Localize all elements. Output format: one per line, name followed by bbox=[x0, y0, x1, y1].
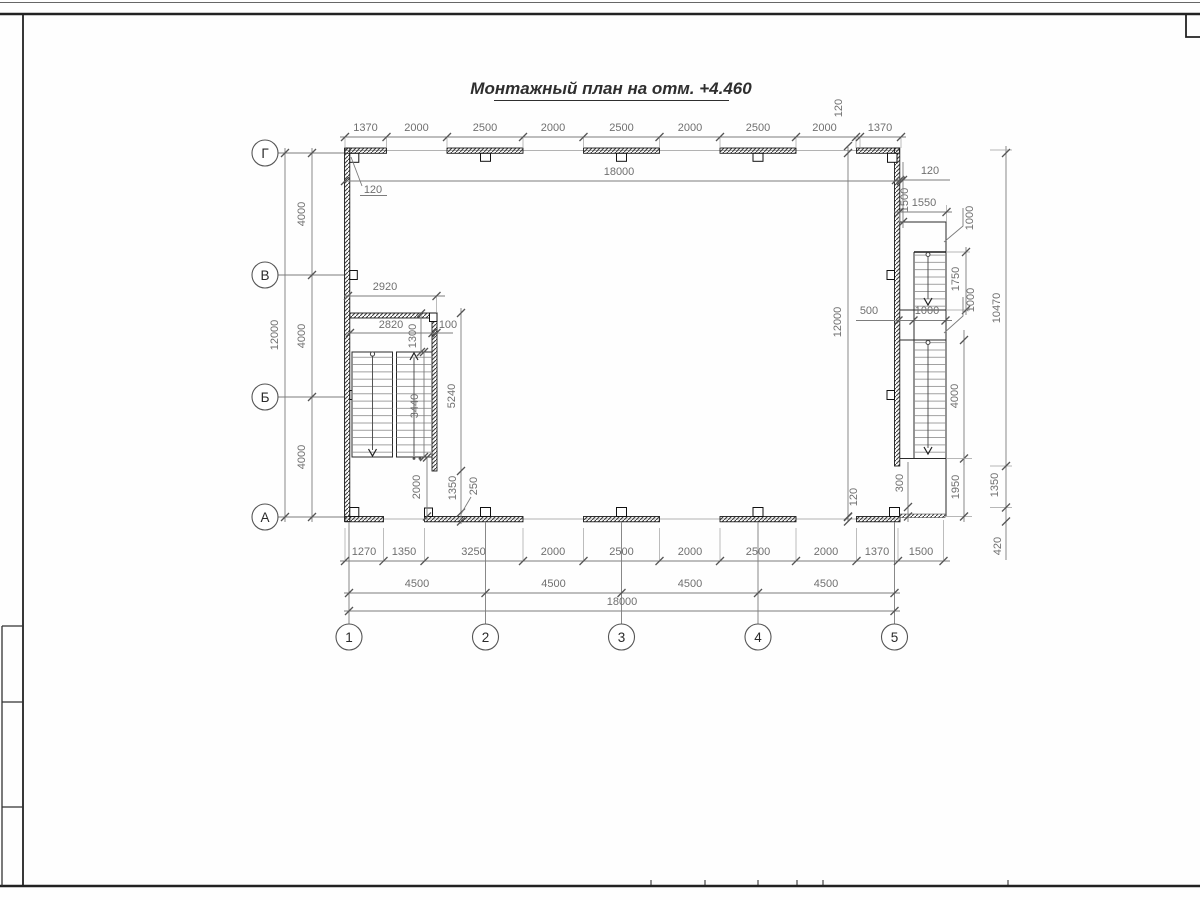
external-stair bbox=[900, 222, 946, 518]
dim-1500: 1500 bbox=[899, 188, 911, 212]
dim-bottom2: 4500 bbox=[678, 578, 702, 590]
dim-corner-120: 120 bbox=[364, 184, 382, 196]
dim-1000: 1000 bbox=[915, 305, 939, 317]
axis-label-4: 4 bbox=[754, 630, 762, 645]
top-wall-segment bbox=[720, 148, 796, 153]
dim-bottom2: 4500 bbox=[405, 578, 429, 590]
dim-bottom1: 1500 bbox=[909, 546, 933, 558]
dim-bottom1: 2000 bbox=[678, 546, 702, 558]
dim-12000: 12000 bbox=[832, 307, 844, 338]
dim-1000-leader-top: 1000 bbox=[964, 206, 976, 230]
dim-bottom1: 3250 bbox=[461, 546, 485, 558]
dim-top: 2000 bbox=[678, 122, 702, 134]
dim-10470: 10470 bbox=[991, 293, 1003, 324]
dim-420: 420 bbox=[992, 537, 1004, 555]
dim-bottom2: 4500 bbox=[541, 578, 565, 590]
dim-left-4000: 4000 bbox=[296, 202, 308, 226]
dim-top: 1370 bbox=[868, 122, 892, 134]
top-wall-segment bbox=[584, 148, 660, 153]
axis-label-v: В bbox=[260, 268, 269, 283]
axis-label-2: 2 bbox=[482, 630, 490, 645]
title-text: Монтажный план на отм. +4.460 bbox=[470, 79, 752, 98]
axis-label-a: А bbox=[260, 510, 269, 525]
dim-5240: 5240 bbox=[446, 384, 458, 408]
dim-top: 2000 bbox=[812, 122, 836, 134]
dim-top-120: 120 bbox=[833, 99, 845, 117]
dimensions-bottom: 1270 1350 3250 2000 2500 2000 2500 2000 … bbox=[340, 520, 950, 615]
dim-bottom1: 2000 bbox=[814, 546, 838, 558]
building-walls bbox=[345, 148, 901, 522]
bottom-wall-segment bbox=[345, 517, 384, 522]
axis-label-5: 5 bbox=[891, 630, 899, 645]
dim-300: 300 bbox=[894, 474, 906, 492]
dim-left-total: 12000 bbox=[269, 320, 281, 351]
dim-1350-right: 1350 bbox=[989, 473, 1001, 497]
montage-plan-svg: Монтажный план на отм. +4.460 bbox=[0, 0, 1200, 900]
dim-3440: 3440 bbox=[409, 394, 421, 418]
dim-1550: 1550 bbox=[912, 197, 936, 209]
axis-label-g: Г bbox=[261, 146, 269, 161]
dim-left-4000: 4000 bbox=[296, 324, 308, 348]
dim-1350: 1350 bbox=[447, 476, 459, 500]
axis-label-b: Б bbox=[261, 390, 270, 405]
corner-stamp-box bbox=[1186, 14, 1200, 37]
dim-bottom1: 1370 bbox=[865, 546, 889, 558]
top-wall-segment bbox=[857, 148, 900, 153]
axis-label-3: 3 bbox=[618, 630, 626, 645]
dim-1950: 1950 bbox=[950, 475, 962, 499]
dim-top: 2500 bbox=[746, 122, 770, 134]
dim-100: 100 bbox=[439, 319, 457, 331]
dim-top-total: 18000 bbox=[604, 166, 635, 178]
dim-top: 2500 bbox=[473, 122, 497, 134]
drawing-title: Монтажный план на отм. +4.460 bbox=[470, 79, 752, 101]
left-margin-boxes bbox=[2, 626, 23, 886]
dim-top: 2000 bbox=[541, 122, 565, 134]
dim-2820: 2820 bbox=[379, 319, 403, 331]
dim-bottom1: 2500 bbox=[746, 546, 770, 558]
dim-bottom1: 2000 bbox=[541, 546, 565, 558]
dim-bottom1: 2500 bbox=[609, 546, 633, 558]
dim-1750: 1750 bbox=[950, 267, 962, 291]
dim-bottom2: 4500 bbox=[814, 578, 838, 590]
dim-4000: 4000 bbox=[949, 384, 961, 408]
dim-120-top: 120 bbox=[921, 165, 939, 177]
axis-label-1: 1 bbox=[345, 630, 353, 645]
stairwell-top-wall bbox=[350, 313, 437, 318]
dimensions-left: 4000 4000 4000 12000 bbox=[269, 148, 316, 522]
bottom-wall-segment bbox=[584, 517, 660, 522]
top-wall-segment bbox=[447, 148, 523, 153]
dim-1000-leader-mid: 1000 bbox=[965, 288, 977, 312]
dim-bottom-total: 18000 bbox=[607, 596, 638, 608]
top-wall-segment bbox=[345, 148, 387, 153]
dim-top: 2000 bbox=[404, 122, 428, 134]
dim-bottom1: 1270 bbox=[352, 546, 376, 558]
sheet-frame bbox=[0, 3, 1200, 887]
drawing-sheet: Монтажный план на отм. +4.460 bbox=[0, 0, 1200, 900]
dim-top: 2500 bbox=[609, 122, 633, 134]
dimensions-top: 1370 2000 2500 2000 2500 2000 2500 2000 … bbox=[340, 99, 906, 196]
bottom-wall-segment bbox=[425, 517, 524, 522]
dim-250: 250 bbox=[468, 477, 480, 495]
dim-2920: 2920 bbox=[373, 281, 397, 293]
dim-1300: 1300 bbox=[407, 324, 419, 348]
dim-2000: 2000 bbox=[411, 475, 423, 499]
dim-500: 500 bbox=[860, 305, 878, 317]
bottom-wall-segment bbox=[857, 517, 901, 522]
dim-120-bottom: 120 bbox=[848, 488, 860, 506]
dim-bottom1: 1350 bbox=[392, 546, 416, 558]
dim-top: 1370 bbox=[353, 122, 377, 134]
dim-left-4000: 4000 bbox=[296, 445, 308, 469]
bottom-wall-segment bbox=[720, 517, 796, 522]
